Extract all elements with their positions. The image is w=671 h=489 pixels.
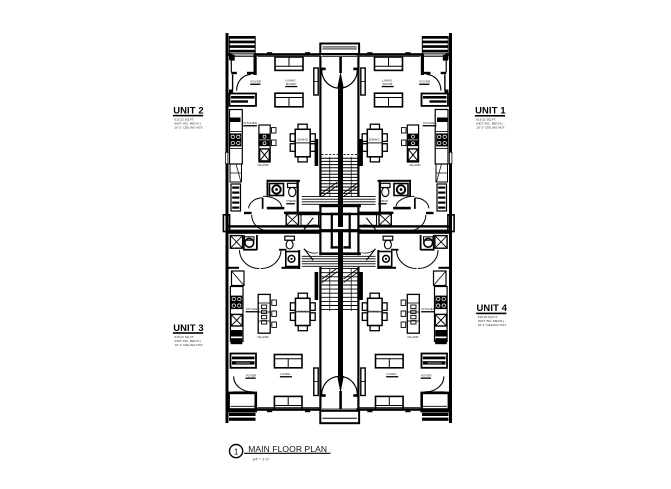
svg-text:FOYER: FOYER <box>420 80 431 84</box>
svg-text:UNIT 4: UNIT 4 <box>477 302 508 313</box>
svg-text:ROOM: ROOM <box>383 82 393 86</box>
svg-text:KITCHEN: KITCHEN <box>423 121 437 125</box>
svg-text:DINING: DINING <box>298 310 309 314</box>
svg-text:DINING: DINING <box>369 138 380 142</box>
svg-text:KITCHEN: KITCHEN <box>422 307 436 311</box>
svg-text:ISLAND: ISLAND <box>258 163 270 167</box>
svg-text:PWDR: PWDR <box>379 199 389 203</box>
svg-text:1: 1 <box>234 447 239 456</box>
svg-text:ISLAND: ISLAND <box>408 335 420 339</box>
svg-text:10'-1" CEILING HGT.: 10'-1" CEILING HGT. <box>476 126 505 130</box>
svg-text:FOYER: FOYER <box>246 373 257 377</box>
svg-text:DINING: DINING <box>297 138 308 142</box>
svg-text:KITCHEN: KITCHEN <box>246 307 260 311</box>
svg-text:ISLAND: ISLAND <box>258 335 270 339</box>
svg-text:LIVING: LIVING <box>387 372 398 376</box>
svg-text:MAIN FLOOR PLAN: MAIN FLOOR PLAN <box>248 444 327 454</box>
svg-text:1/4" = 1'-0": 1/4" = 1'-0" <box>252 458 270 462</box>
svg-text:10'-1" CEILING HGT.: 10'-1" CEILING HGT. <box>174 343 203 347</box>
svg-text:LIVING: LIVING <box>280 372 291 376</box>
svg-text:PWDR: PWDR <box>287 199 297 203</box>
svg-text:ISLAND: ISLAND <box>410 163 422 167</box>
svg-text:UNIT 3: UNIT 3 <box>173 322 204 333</box>
svg-text:UNIT 1: UNIT 1 <box>475 105 506 116</box>
svg-text:FOYER: FOYER <box>421 373 432 377</box>
svg-text:10'-1" CEILING HGT.: 10'-1" CEILING HGT. <box>478 323 507 327</box>
svg-text:10'-1" CEILING HGT.: 10'-1" CEILING HGT. <box>174 125 203 129</box>
svg-text:UNIT 2: UNIT 2 <box>173 104 204 115</box>
svg-text:KITCHEN: KITCHEN <box>244 121 258 125</box>
svg-text:DINING: DINING <box>368 310 379 314</box>
svg-text:FOYER: FOYER <box>251 80 262 84</box>
svg-text:ROOM: ROOM <box>286 82 296 86</box>
